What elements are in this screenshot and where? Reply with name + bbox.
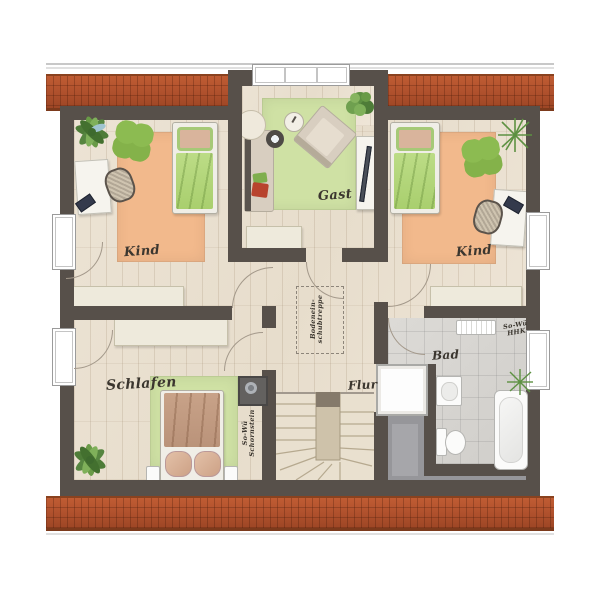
staircase (276, 392, 374, 480)
wall-outer-right (526, 106, 540, 494)
window-schlafen (52, 328, 76, 386)
plant-kind-right-icon (496, 116, 534, 154)
plant-leaves (72, 444, 107, 477)
wall-gast-bottom-right (342, 248, 374, 262)
sofa-back-rail (245, 131, 251, 211)
roof-ridge-line-bottom-2 (46, 533, 554, 535)
plant-spiky-leaves (507, 369, 533, 395)
wall-gast-bottom-left (242, 248, 306, 262)
staircase-treads (276, 392, 374, 480)
plant-leaves (346, 92, 374, 116)
wall-outer-bottom (60, 480, 540, 496)
label-room-bad: Bad (432, 347, 460, 362)
bed-schlafen (160, 390, 224, 482)
wardrobe-schlafen (114, 318, 228, 346)
bathtub-basin (499, 397, 523, 463)
toilet-bowl (445, 430, 466, 455)
wall-mid-left (60, 306, 232, 320)
void-zone-left-inset (392, 424, 418, 476)
duvet-kind-left (176, 153, 213, 209)
bed-kind-left (172, 122, 218, 214)
towel-radiator (456, 320, 496, 335)
plant-leaves (74, 115, 110, 148)
label-attic-hatch: Bodenein- schubtreppe (310, 288, 328, 350)
clock-hand (291, 116, 296, 123)
wall-bath-top (424, 306, 526, 318)
pillow-schlafen-left (165, 451, 192, 477)
roof-tiles-bottom (46, 496, 554, 531)
label-room-flur: Flur (348, 377, 378, 393)
duvet-kind-right (394, 153, 435, 209)
plant-kind-left-icon (70, 110, 114, 154)
wall-gast-left (228, 120, 242, 262)
window-dormer-gast (252, 64, 350, 86)
bed-kind-right (390, 122, 440, 214)
label-room-kind-left: Kind (124, 243, 161, 260)
pillow-kind-left (177, 127, 213, 151)
duvet-schlafen (164, 393, 220, 447)
label-attic-line2: schubtreppe (317, 288, 324, 350)
label-chimney-line2: Schornstein (249, 402, 256, 464)
plant-bath-icon (506, 368, 534, 396)
wall-gast-right (374, 120, 388, 262)
pillow-schlafen-right (194, 451, 221, 477)
wall-schlafen-flur-upper (262, 306, 276, 328)
wall-flur-east-upper (374, 302, 388, 364)
label-chimney: So-Wü Schornstein (242, 402, 260, 464)
floor-plan: Kind Gast Kind Schlafen Flur Bad So-Wü H… (0, 0, 600, 600)
plant-spiky-leaves (498, 118, 532, 152)
plant-schlafen-icon (68, 438, 112, 482)
door-panel-bath (376, 364, 428, 416)
chimney-flue-icon (245, 382, 257, 394)
washbasin-bowl (441, 382, 458, 401)
stair-newel-cap (316, 392, 340, 407)
wardrobe-kind-right (430, 286, 522, 308)
label-room-kind-right: Kind (456, 243, 493, 260)
wall-outer-left (60, 106, 74, 494)
window-kind-right (526, 212, 550, 270)
wardrobe-kind-left (70, 286, 184, 308)
sofa-cushion-red (251, 182, 269, 198)
pillow-kind-right (396, 127, 434, 151)
label-room-gast: Gast (318, 187, 353, 204)
bathtub (494, 390, 528, 470)
washbasin (436, 376, 462, 406)
wall-flur-east-lower (374, 412, 388, 480)
floor-lamp-gast (266, 130, 284, 148)
dresser-gast (246, 226, 302, 250)
plant-gast-icon (342, 86, 378, 122)
pouf-kind-left (110, 118, 155, 163)
